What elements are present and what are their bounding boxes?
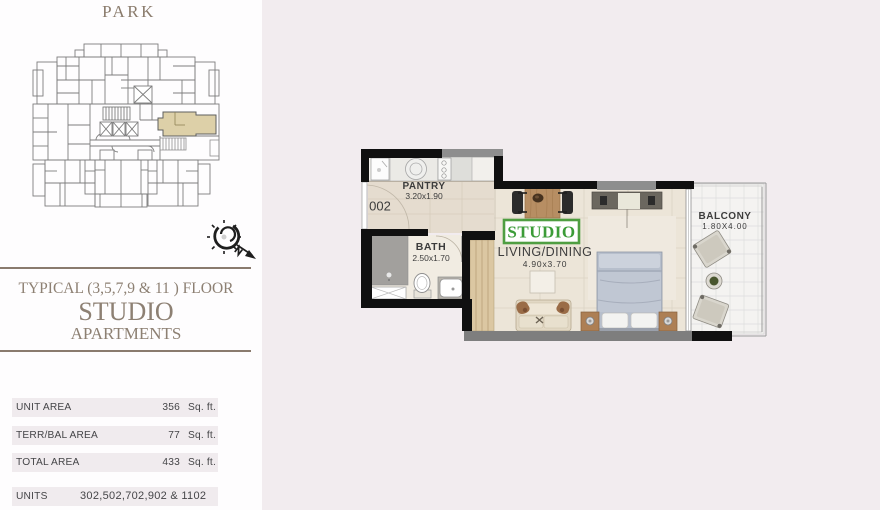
svg-text:STUDIO: STUDIO xyxy=(507,223,575,242)
svg-text:4.90x3.70: 4.90x3.70 xyxy=(523,259,568,269)
svg-text:BATH: BATH xyxy=(416,241,446,253)
svg-text:LIVING/DINING: LIVING/DINING xyxy=(498,245,593,259)
svg-text:BALCONY: BALCONY xyxy=(699,211,752,222)
svg-text:2.50x1.70: 2.50x1.70 xyxy=(412,253,450,263)
svg-text:1.80X4.00: 1.80X4.00 xyxy=(702,222,747,231)
svg-text:3.20x1.90: 3.20x1.90 xyxy=(405,191,443,201)
svg-text:002: 002 xyxy=(369,199,391,214)
